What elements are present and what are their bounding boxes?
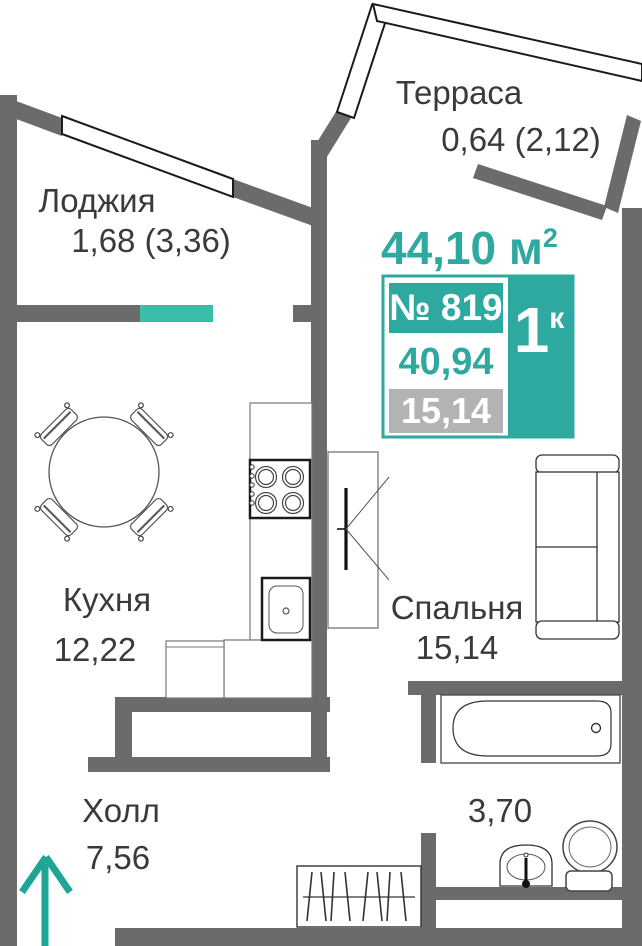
sofa-bed <box>536 455 619 639</box>
loggia-name-label: Лоджия <box>39 182 156 219</box>
wall-terrace-right <box>604 115 641 213</box>
living-area-label: 40,94 <box>398 341 493 383</box>
wall-left <box>0 95 17 946</box>
toilet <box>563 821 617 891</box>
dining-set <box>34 402 174 542</box>
wall-bedroom-bathroom <box>408 681 640 695</box>
dining-table <box>49 417 159 527</box>
hall-area-label: 7,56 <box>86 839 150 876</box>
wall-loggia-bottom-right <box>293 305 311 322</box>
washbasin <box>500 845 552 888</box>
apartment-number-label: № 819 <box>389 287 502 328</box>
apartment-badge: 44,10 м2 № 819 40,94 15,14 1к <box>381 222 573 437</box>
wall-bathroom-left-upper <box>421 695 436 763</box>
bathtub <box>441 695 620 763</box>
sofa-armrest-top <box>536 455 619 473</box>
hall-wardrobe <box>297 866 421 927</box>
terrace-area-label: 0,64 (2,12) <box>441 121 601 158</box>
bathtub-drain <box>592 724 601 733</box>
bedroom-area-label: 15,14 <box>416 629 499 666</box>
toilet-tank <box>566 871 612 891</box>
kitchen-sink <box>262 578 310 640</box>
kitchen-corner-counter <box>224 640 312 698</box>
bedroom-name-label: Спальня <box>391 589 524 626</box>
wall-right <box>622 208 642 946</box>
kitchen-area-label: 12,22 <box>54 631 137 668</box>
entrance-arrow-icon <box>22 857 70 946</box>
sofa-armrest-bottom <box>536 621 619 639</box>
wall-kitchen-right <box>311 140 327 772</box>
floor-plan-svg: Терраса 0,64 (2,12) Лоджия 1,68 (3,36) К… <box>0 0 642 946</box>
hall-name-label: Холл <box>82 792 160 829</box>
total-area-label: 44,10 м2 <box>381 222 558 274</box>
wall-kitchen-hall-top <box>115 697 330 712</box>
wall-terrace-connector <box>311 110 351 160</box>
wall-loggia-bottom-left <box>17 305 140 322</box>
terrace-name-label: Терраса <box>396 74 523 111</box>
kitchen-counter <box>166 403 312 698</box>
wall-kitchen-hall-bottom <box>88 757 330 772</box>
wall-bathroom-left-lower <box>421 833 436 928</box>
wall-terrace-bottom <box>473 164 607 220</box>
floor-plan: Терраса 0,64 (2,12) Лоджия 1,68 (3,36) К… <box>0 0 642 946</box>
wall-diagonal-left-b <box>233 179 313 226</box>
bedroom-wardrobe <box>328 452 389 628</box>
kitchen-name-label: Кухня <box>63 581 151 618</box>
kitchen-stove <box>250 460 310 518</box>
bathroom-area-label: 3,70 <box>468 792 532 829</box>
wall-bottom <box>115 928 642 946</box>
loggia-window-bar <box>140 305 213 322</box>
terrace-railing-top <box>373 4 642 81</box>
room-area-label: 15,14 <box>401 390 491 431</box>
loggia-area-label: 1,68 (3,36) <box>71 222 231 259</box>
windows <box>62 4 642 197</box>
kitchen-fridge <box>166 641 224 698</box>
